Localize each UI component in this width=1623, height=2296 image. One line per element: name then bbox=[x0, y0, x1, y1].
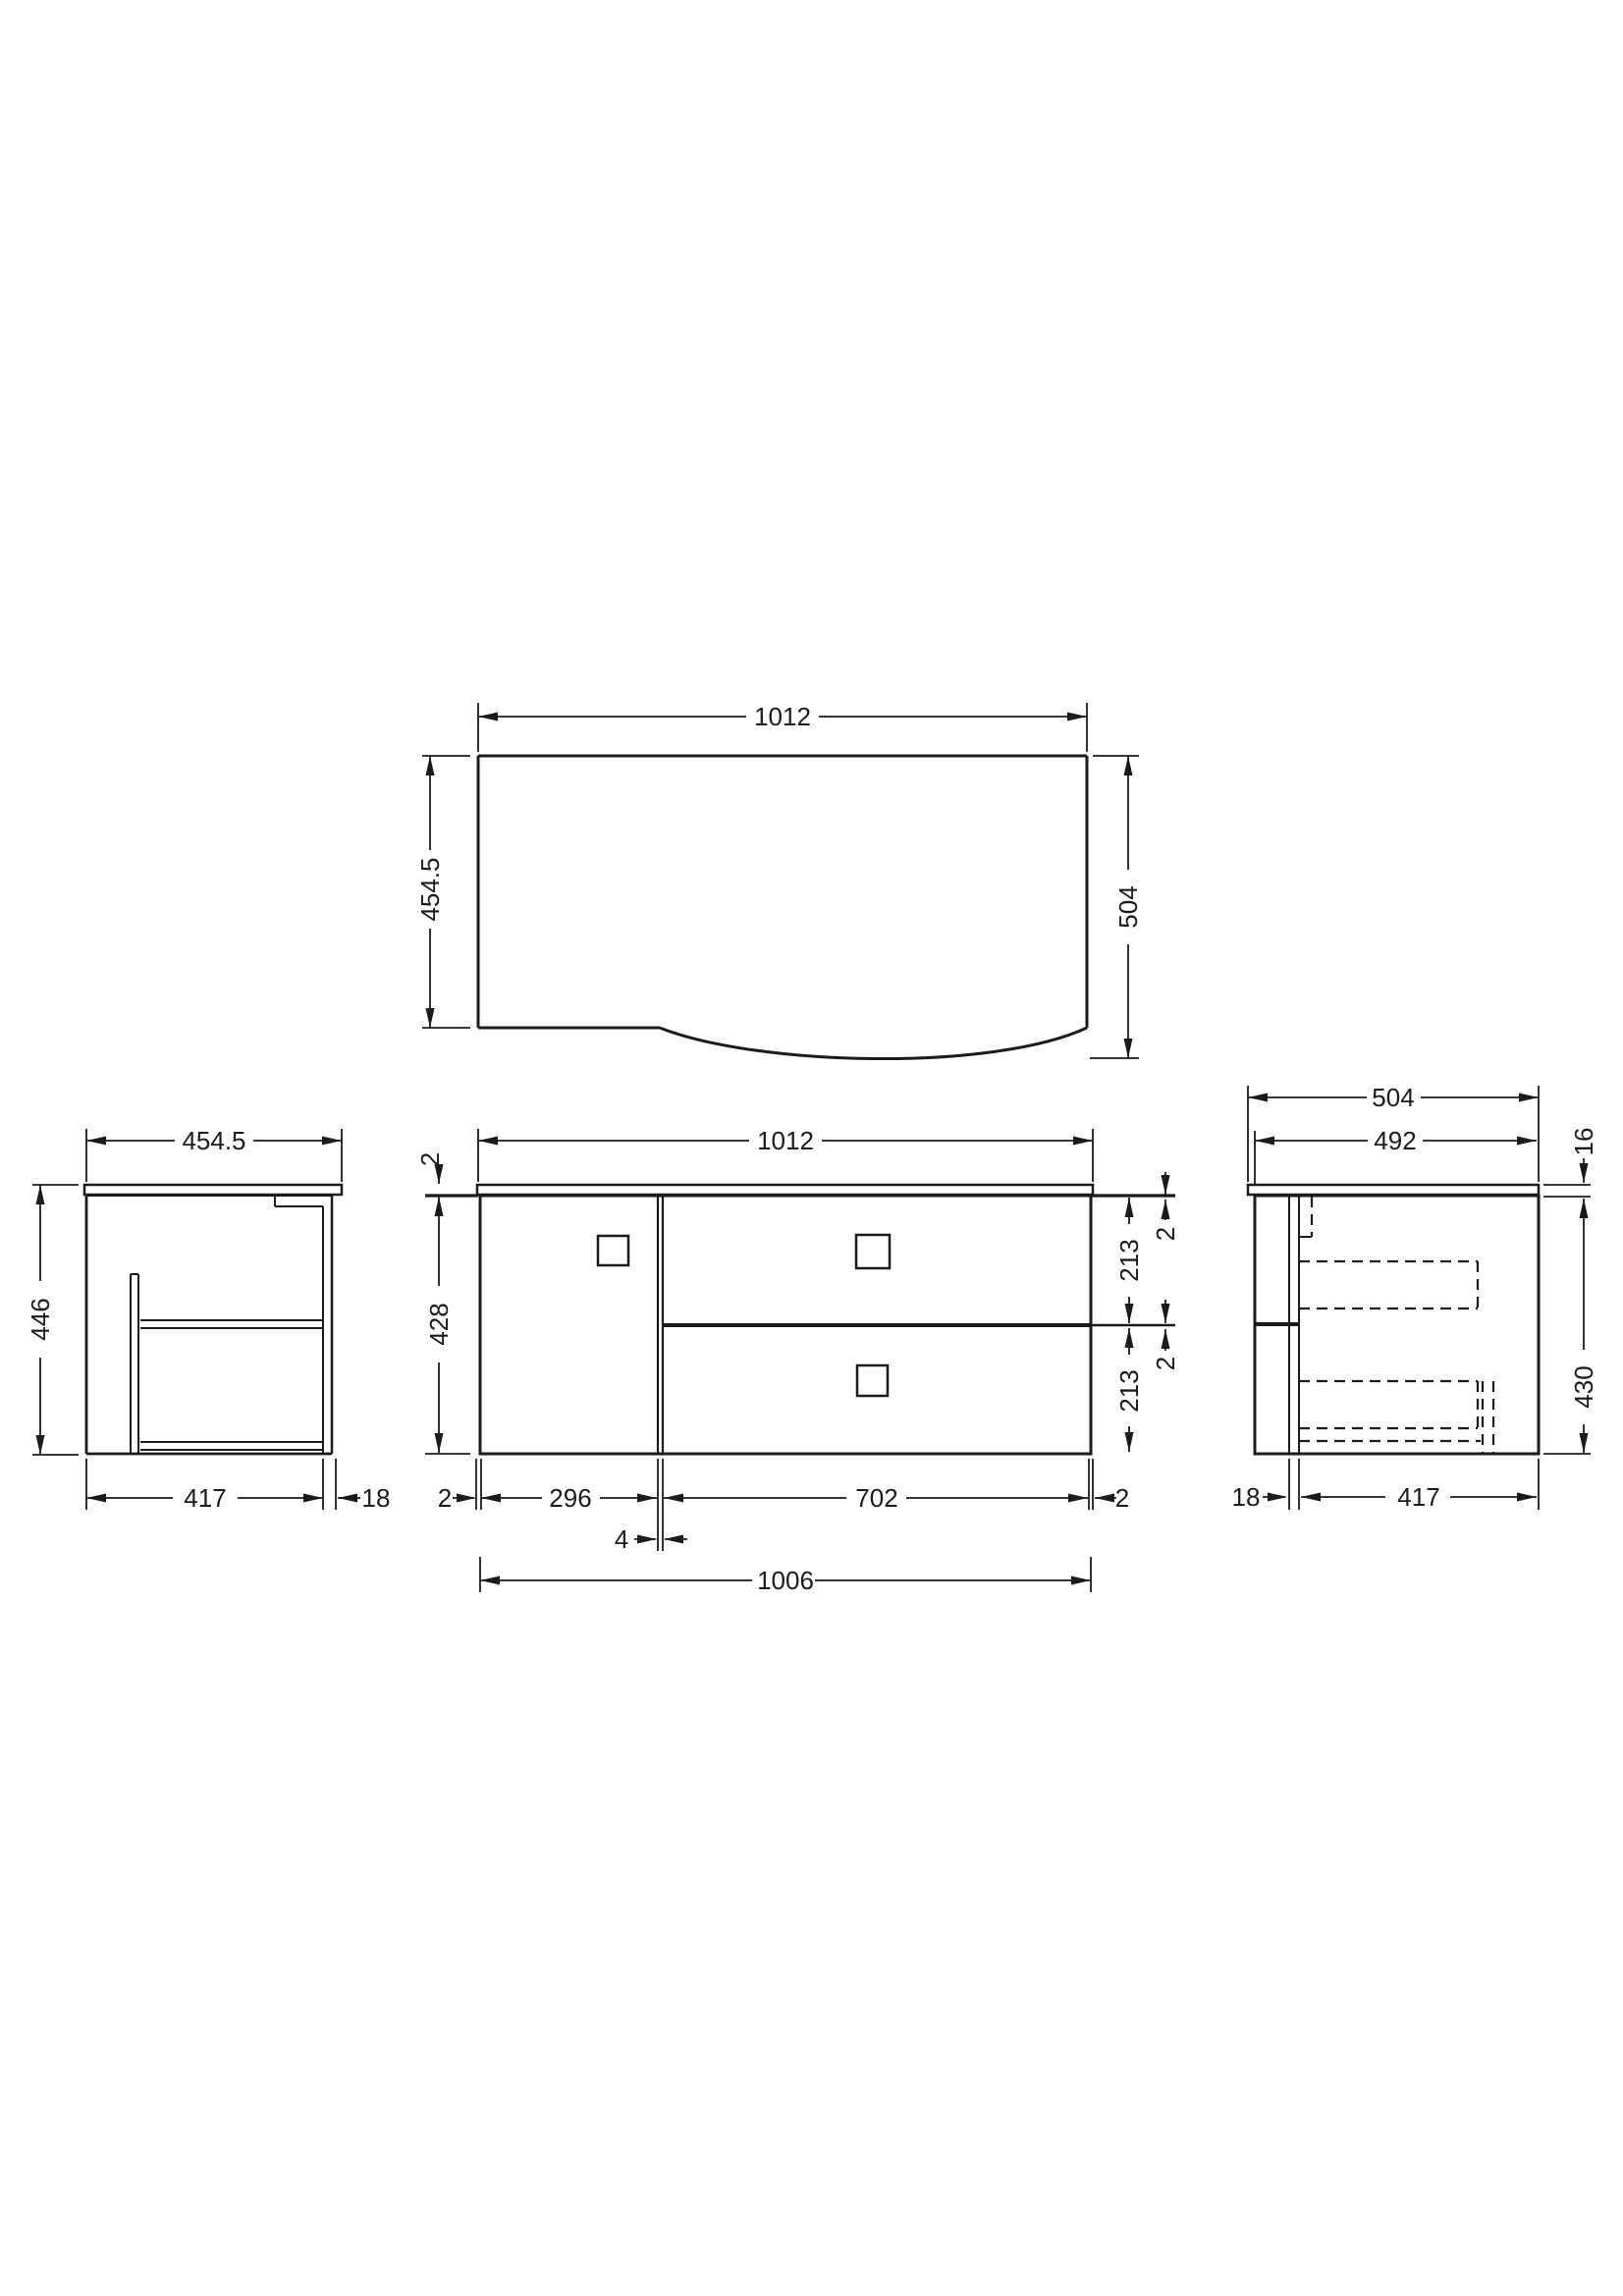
dim-label-right-depth-504: 504 bbox=[1372, 1083, 1414, 1112]
basin-front-curve bbox=[660, 1028, 1087, 1059]
dim-arrowhead bbox=[1255, 1137, 1274, 1146]
dim-label-top-left-depth-454-5: 454.5 bbox=[415, 857, 445, 921]
dim-label-front-overall-width-1012: 1012 bbox=[757, 1126, 814, 1155]
dim-label-left-depth-454-5: 454.5 bbox=[182, 1126, 245, 1155]
dim-arrowhead bbox=[1162, 1200, 1170, 1219]
dim-label-right-height-430: 430 bbox=[1569, 1365, 1598, 1408]
dim-arrowhead bbox=[1517, 1493, 1537, 1502]
dim-arrowhead bbox=[1580, 1433, 1589, 1453]
dim-arrowhead bbox=[435, 1433, 444, 1453]
dim-arrowhead bbox=[1125, 1198, 1134, 1217]
dim-arrowhead bbox=[1162, 1304, 1170, 1323]
dim-label-right-internal-417: 417 bbox=[1397, 1482, 1439, 1512]
dim-arrowhead bbox=[664, 1494, 683, 1503]
dim-label-top-right-depth-504: 504 bbox=[1113, 885, 1143, 928]
dim-arrowhead bbox=[338, 1494, 357, 1503]
dim-arrowhead bbox=[1301, 1493, 1321, 1502]
dim-arrowhead bbox=[1162, 1329, 1170, 1349]
dim-label-front-bottom-right-2: 2 bbox=[1115, 1483, 1129, 1513]
dim-label-front-divider-4: 4 bbox=[615, 1524, 628, 1554]
dim-arrowhead bbox=[1095, 1494, 1114, 1503]
dim-label-front-right-gap-mid-2: 2 bbox=[1151, 1357, 1180, 1370]
dim-arrowhead bbox=[426, 756, 435, 775]
dim-arrowhead bbox=[1124, 756, 1133, 775]
dim-label-top-width-1012: 1012 bbox=[754, 702, 811, 731]
dim-label-front-right-gap-top-2: 2 bbox=[1151, 1227, 1180, 1241]
dim-arrowhead bbox=[1580, 1163, 1589, 1183]
dim-arrowhead bbox=[1068, 1494, 1088, 1503]
dim-arrowhead bbox=[1125, 1432, 1134, 1452]
dim-label-front-body-width-1006: 1006 bbox=[757, 1566, 814, 1595]
technical-drawing: 1012454.55041012242821322132229670224100… bbox=[0, 0, 1623, 2296]
dim-arrowhead bbox=[1268, 1493, 1287, 1502]
dim-arrowhead bbox=[1517, 1137, 1537, 1146]
dim-arrowhead bbox=[1073, 1137, 1093, 1146]
dim-arrowhead bbox=[1125, 1304, 1134, 1323]
dim-arrowhead bbox=[637, 1494, 657, 1503]
dim-arrowhead bbox=[1125, 1328, 1134, 1348]
dim-arrowhead bbox=[435, 1197, 444, 1216]
dim-label-left-internal-417: 417 bbox=[184, 1483, 226, 1513]
top-drawer-handle-cutout bbox=[856, 1235, 890, 1268]
plan-view: 1012454.5504 bbox=[415, 702, 1143, 1059]
dim-label-right-body-depth-492: 492 bbox=[1374, 1126, 1416, 1155]
dim-label-right-back-panel-18: 18 bbox=[1232, 1482, 1261, 1512]
dim-arrowhead bbox=[303, 1494, 323, 1503]
dim-arrowhead bbox=[86, 1137, 106, 1146]
dim-arrowhead bbox=[1067, 713, 1087, 721]
dim-arrowhead bbox=[1248, 1094, 1268, 1102]
dim-label-front-top-gap-2: 2 bbox=[415, 1152, 445, 1166]
dim-label-left-back-panel-18: 18 bbox=[362, 1483, 391, 1513]
dim-arrowhead bbox=[1519, 1094, 1539, 1102]
drawing-canvas: 1012454.55041012242821322132229670224100… bbox=[0, 0, 1623, 2296]
front-worktop bbox=[477, 1185, 1093, 1195]
dim-arrowhead bbox=[1071, 1576, 1091, 1585]
dim-arrowhead bbox=[637, 1535, 657, 1544]
dim-arrowhead bbox=[322, 1137, 342, 1146]
dim-arrowhead bbox=[457, 1494, 476, 1503]
dim-label-front-door-296: 296 bbox=[549, 1483, 591, 1513]
right-worktop bbox=[1248, 1185, 1539, 1195]
dim-arrowhead bbox=[36, 1185, 45, 1204]
right-end-view: 5044921643018417 bbox=[1232, 1083, 1598, 1512]
dim-label-front-bottom-left-2: 2 bbox=[438, 1483, 452, 1513]
dim-label-front-top-drawer-213: 213 bbox=[1114, 1239, 1144, 1281]
dim-label-front-drawers-702: 702 bbox=[855, 1483, 897, 1513]
dim-arrowhead bbox=[1124, 1039, 1133, 1058]
bottom-drawer-handle-cutout bbox=[857, 1365, 888, 1396]
dim-arrowhead bbox=[426, 1008, 435, 1028]
dim-arrowhead bbox=[478, 713, 498, 721]
dim-arrowhead bbox=[86, 1494, 106, 1503]
dim-arrowhead bbox=[1162, 1175, 1170, 1195]
dim-arrowhead bbox=[481, 1494, 501, 1503]
dim-arrowhead bbox=[480, 1576, 500, 1585]
dim-arrowhead bbox=[664, 1535, 683, 1544]
dim-label-right-worktop-16: 16 bbox=[1569, 1128, 1598, 1156]
dim-label-front-height-428: 428 bbox=[424, 1303, 454, 1345]
dim-label-left-height-446: 446 bbox=[26, 1298, 55, 1340]
left-end-view: 454.544641718 bbox=[26, 1126, 390, 1513]
dim-arrowhead bbox=[478, 1137, 498, 1146]
left-worktop bbox=[84, 1185, 342, 1195]
dim-arrowhead bbox=[1580, 1199, 1589, 1218]
dim-arrowhead bbox=[36, 1435, 45, 1455]
door-handle-cutout bbox=[598, 1236, 628, 1265]
dim-label-front-bottom-drawer-213: 213 bbox=[1114, 1369, 1144, 1412]
front-elevation-view: 10122428213221322296702241006 bbox=[415, 1126, 1180, 1595]
